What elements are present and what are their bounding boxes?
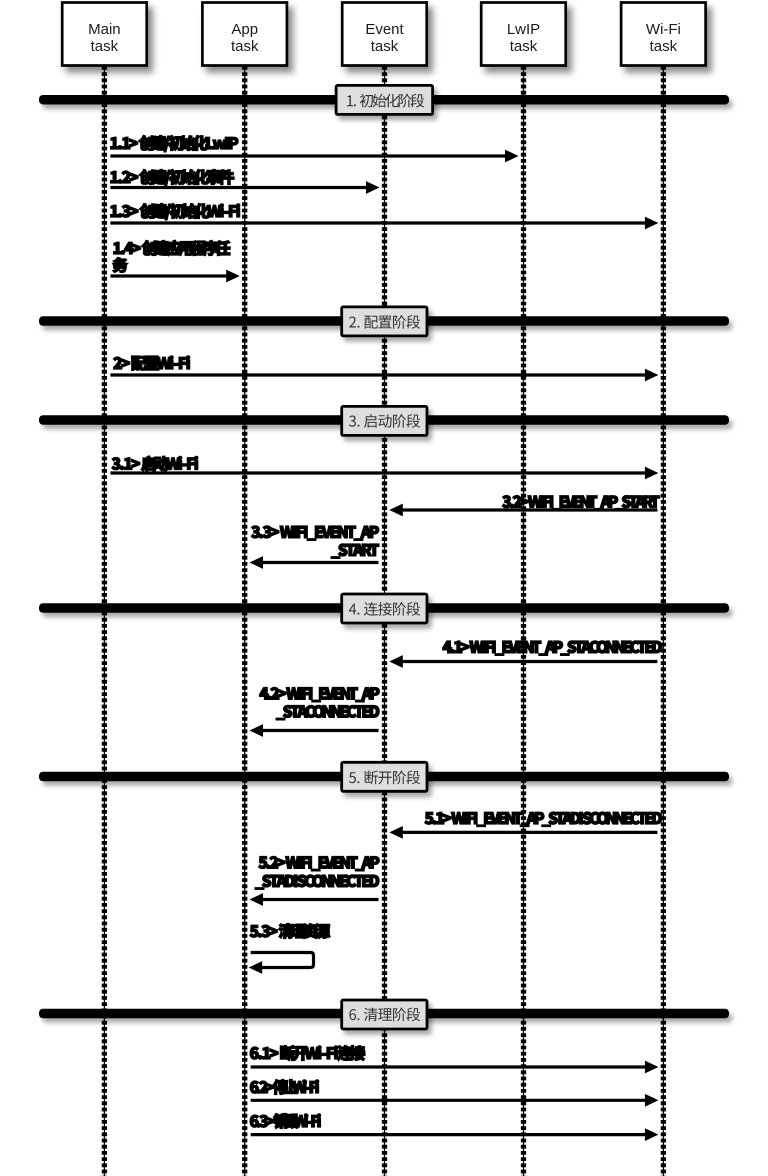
svg-text:Main: Main [88,21,121,38]
svg-text:Wi-Fi: Wi-Fi [646,21,681,38]
svg-text:task: task [510,38,538,55]
svg-text:task: task [650,38,678,55]
svg-text:LwIP: LwIP [507,21,540,38]
svg-text:App: App [231,21,258,38]
svg-text:task: task [371,38,399,55]
svg-text:task: task [91,38,119,55]
svg-text:task: task [231,38,259,55]
svg-text:Event: Event [365,21,404,38]
